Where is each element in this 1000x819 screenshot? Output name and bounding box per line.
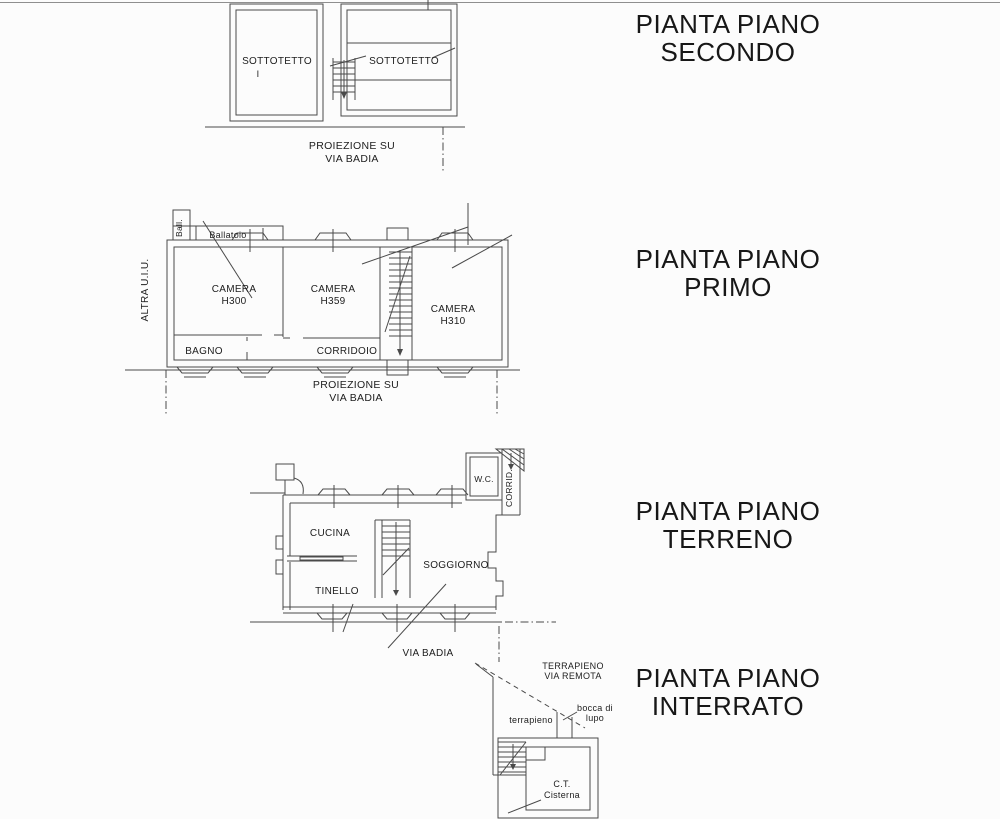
room-label-wc: W.C. (474, 474, 494, 484)
plan-interrato: TERRAPIENO VIA REMOTA terrapieno bocca d… (475, 661, 613, 818)
floor-plan-sheet: PIANTA PIANO SECONDO PIANTA PIANO PRIMO … (0, 0, 1000, 819)
primo-windows-bottom (177, 360, 473, 377)
terreno-windows-bottom (317, 604, 470, 632)
room-label-soggiorno: SOGGIORNO (423, 560, 488, 571)
interrato-labels: TERRAPIENO VIA REMOTA terrapieno bocca d… (509, 661, 613, 800)
room-label-camera-h359: CAMERA (311, 284, 356, 295)
primo-stairs (385, 250, 412, 356)
room-label-ct: C.T. (553, 779, 570, 789)
caption-proiezione: PROIEZIONE SU (313, 379, 399, 391)
caption-via-badia: VIA BADIA (329, 392, 382, 404)
room-label-corrid: CORRID. (504, 469, 514, 507)
caption-via-badia: VIA BADIA (325, 153, 378, 165)
label-terrapieno-via-remota: VIA REMOTA (544, 671, 601, 681)
label-terrapieno: terrapieno (509, 715, 553, 725)
room-height-h359: H359 (320, 296, 345, 307)
terreno-stairs (375, 520, 410, 598)
interrato-stairs (498, 742, 545, 775)
label-terrapieno-via-remota: TERRAPIENO (542, 661, 604, 671)
label-ball: Ball. (174, 219, 184, 237)
street-label-via-badia: VIA BADIA (402, 648, 453, 659)
plan-primo: ALTRA U.I.U. Ball. Ballatoio CAMERA H300… (125, 203, 520, 415)
terreno-labels: CUCINA TINELLO SOGGIORNO W.C. CORRID. VI… (310, 469, 514, 659)
terreno-windows-top (318, 485, 468, 508)
room-height-h310: H310 (440, 316, 465, 327)
floor-plan-drawing: SOTTOTETTO I SOTTOTETTO PROIEZIONE SU VI… (0, 0, 1000, 819)
room-height-h300: H300 (221, 296, 246, 307)
room-label-sottotetto-left: SOTTOTETTO (242, 56, 312, 67)
room-label-camera-h310: CAMERA (431, 304, 476, 315)
plan-secondo: SOTTOTETTO I SOTTOTETTO PROIEZIONE SU VI… (205, 0, 465, 172)
caption-proiezione: PROIEZIONE SU (309, 140, 395, 152)
room-label-sottotetto-right: SOTTOTETTO (369, 56, 439, 67)
room-label-tinello: TINELLO (315, 586, 359, 597)
room-label-bagno: BAGNO (185, 346, 223, 357)
label-bocca-di-lupo: bocca di (577, 703, 613, 713)
room-label-corridoio: CORRIDOIO (317, 346, 377, 357)
label-bocca-di-lupo: lupo (586, 713, 604, 723)
label-altra-uiu: ALTRA U.I.U. (140, 259, 151, 322)
secondo-stairs (330, 56, 366, 100)
room-label-cisterna: Cisterna (544, 790, 580, 800)
room-label-cucina: CUCINA (310, 528, 350, 539)
label-ballatoio: Ballatoio (209, 230, 246, 240)
plan-terreno: CUCINA TINELLO SOGGIORNO W.C. CORRID. VI… (250, 449, 556, 662)
room-label-camera-h300: CAMERA (212, 284, 257, 295)
room-label-sub: I (257, 69, 260, 79)
